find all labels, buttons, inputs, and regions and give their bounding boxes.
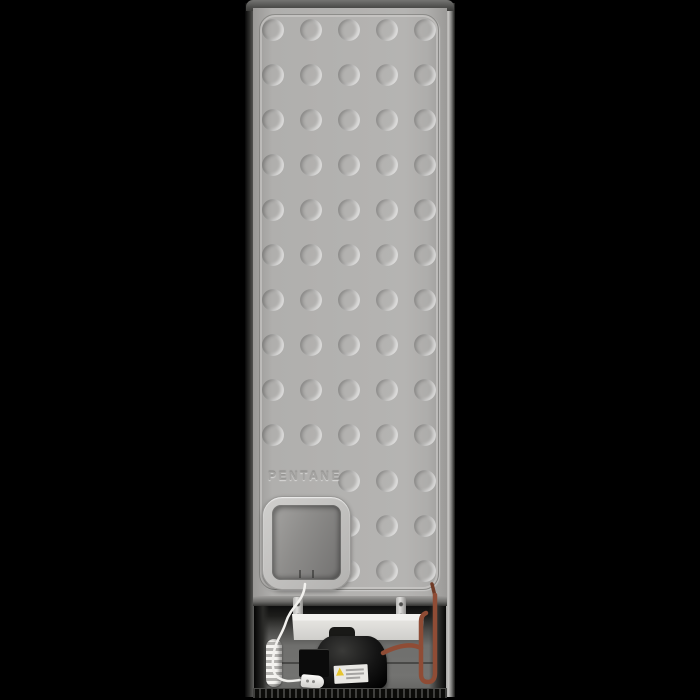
dimple	[338, 19, 360, 41]
dimple	[376, 289, 398, 311]
dimple	[262, 19, 284, 41]
dimple	[414, 109, 436, 131]
dimple	[414, 154, 436, 176]
dimple	[262, 64, 284, 86]
dimple	[300, 424, 322, 446]
dimple	[376, 19, 398, 41]
dimple	[300, 334, 322, 356]
dimple	[338, 199, 360, 221]
dimple	[376, 424, 398, 446]
dimple	[262, 244, 284, 266]
compartment-right-wall	[429, 606, 446, 698]
refrigerator-back: PENTANE	[245, 0, 455, 700]
dimple	[338, 64, 360, 86]
recess-notch	[312, 570, 314, 578]
warning-triangle-icon	[336, 667, 344, 675]
dimple	[376, 334, 398, 356]
dimple	[376, 470, 398, 492]
label-text-line	[346, 677, 360, 680]
dimple	[376, 244, 398, 266]
drain-hose-coil	[266, 639, 282, 687]
dimple	[338, 109, 360, 131]
dimple	[338, 424, 360, 446]
dimple	[414, 560, 436, 582]
label-text-line	[346, 668, 364, 671]
dimple	[376, 515, 398, 537]
dimple	[414, 379, 436, 401]
dimple	[300, 64, 322, 86]
dimple	[414, 515, 436, 537]
dimple	[338, 334, 360, 356]
dimple	[376, 560, 398, 582]
power-plug	[300, 674, 324, 689]
dimple	[338, 244, 360, 266]
dimple	[262, 154, 284, 176]
dimple	[300, 109, 322, 131]
dimple	[262, 199, 284, 221]
recess-notch	[299, 570, 301, 578]
dimple	[376, 199, 398, 221]
dimple	[300, 289, 322, 311]
dimple	[376, 109, 398, 131]
dimple	[376, 379, 398, 401]
dimple	[414, 244, 436, 266]
dimple	[376, 154, 398, 176]
dimple	[414, 424, 436, 446]
compressor-relay-box	[299, 649, 329, 677]
dimple	[300, 244, 322, 266]
dimple	[338, 379, 360, 401]
dimple	[300, 19, 322, 41]
access-panel-recess	[272, 505, 341, 580]
back-panel-bottom-lip	[253, 596, 447, 606]
dimple	[262, 289, 284, 311]
label-text-line	[346, 672, 364, 675]
dimple	[414, 334, 436, 356]
compressor-warning-label	[334, 664, 369, 684]
dimple	[300, 199, 322, 221]
dimple	[414, 19, 436, 41]
dimple	[262, 334, 284, 356]
dimple	[300, 379, 322, 401]
pentane-embossed-text: PENTANE	[268, 469, 342, 483]
dimple	[262, 109, 284, 131]
ventilation-rail	[253, 688, 447, 698]
plug-pin-hole	[312, 680, 315, 683]
dimple	[338, 154, 360, 176]
access-panel	[262, 496, 351, 590]
dimple	[262, 424, 284, 446]
dimple	[338, 289, 360, 311]
dimple	[376, 64, 398, 86]
dimple	[414, 470, 436, 492]
dimple	[414, 199, 436, 221]
dimple	[414, 289, 436, 311]
dimple	[262, 379, 284, 401]
plug-pin-hole	[306, 679, 309, 682]
dimple	[414, 64, 436, 86]
dimple	[300, 154, 322, 176]
product-photo-stage: PENTANE	[0, 0, 700, 700]
